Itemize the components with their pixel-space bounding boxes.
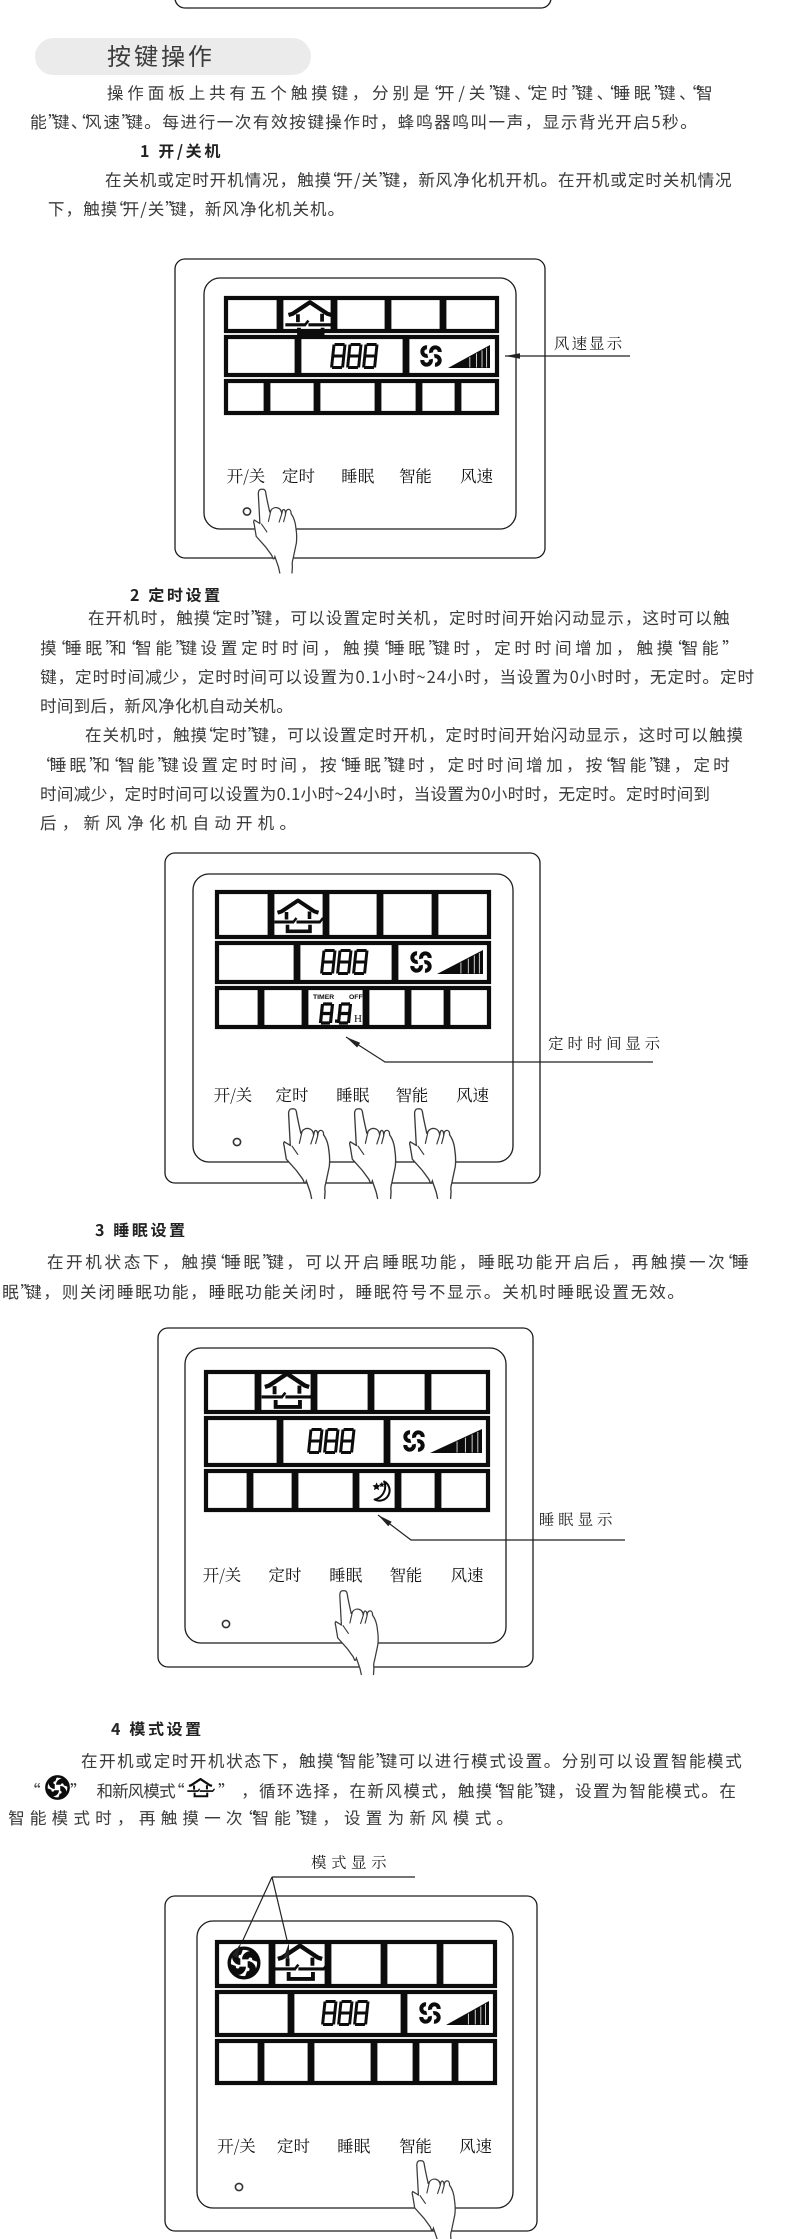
svg-text:定时: 定时 bbox=[269, 1562, 303, 1586]
svg-text:定时: 定时 bbox=[277, 2133, 311, 2157]
svg-text:智能: 智能 bbox=[399, 2133, 432, 2157]
svg-text:开/关: 开/关 bbox=[203, 1562, 242, 1586]
svg-text:定时: 定时 bbox=[276, 1082, 310, 1106]
svg-text:H: H bbox=[354, 1013, 362, 1025]
svg-text:睡眠: 睡眠 bbox=[337, 2133, 371, 2157]
svg-text:风速: 风速 bbox=[451, 1562, 484, 1586]
svg-text:睡眠显示: 睡眠显示 bbox=[539, 1508, 616, 1530]
svg-text:睡眠: 睡眠 bbox=[341, 463, 375, 487]
svg-text:开/关: 开/关 bbox=[214, 1082, 253, 1106]
svg-text:开/关: 开/关 bbox=[217, 2133, 256, 2157]
svg-text:风速显示: 风速显示 bbox=[554, 332, 624, 354]
svg-text:OFF: OFF bbox=[349, 994, 363, 1001]
svg-text:风速: 风速 bbox=[456, 1082, 489, 1106]
svg-text:风速: 风速 bbox=[460, 463, 493, 487]
svg-text:睡眠: 睡眠 bbox=[336, 1082, 370, 1106]
svg-text:风速: 风速 bbox=[459, 2133, 492, 2157]
svg-text:智能: 智能 bbox=[390, 1562, 423, 1586]
svg-text:开/关: 开/关 bbox=[227, 463, 266, 487]
svg-text:模式显示: 模式显示 bbox=[311, 1851, 391, 1873]
svg-text:智能: 智能 bbox=[399, 463, 432, 487]
svg-text:TIMER: TIMER bbox=[313, 994, 334, 1001]
svg-text:定时时间显示: 定时时间显示 bbox=[548, 1032, 664, 1054]
svg-text:睡眠: 睡眠 bbox=[329, 1562, 363, 1586]
svg-text:智能: 智能 bbox=[396, 1082, 429, 1106]
svg-text:定时: 定时 bbox=[282, 463, 316, 487]
